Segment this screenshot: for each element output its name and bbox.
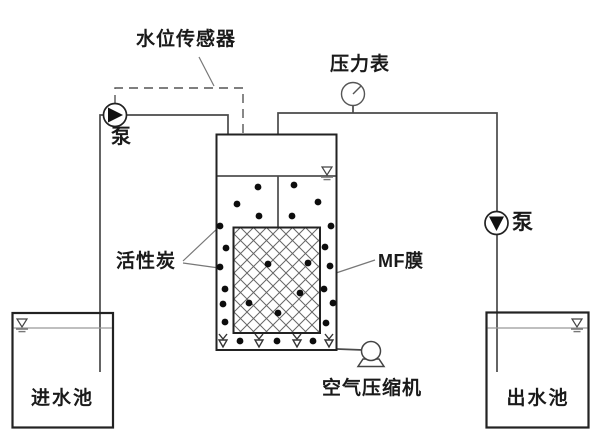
carbon-dot [222, 286, 229, 293]
carbon-dot [321, 286, 328, 293]
carbon-dot [323, 320, 330, 327]
leader-activated-carbon-1 [183, 227, 219, 261]
leader-water-level-sensor [199, 57, 214, 86]
pump-right-icon [485, 212, 508, 235]
carbon-dot [330, 300, 337, 307]
carbon-dot [234, 201, 241, 208]
carbon-dot [237, 338, 244, 345]
schematic-drawing [0, 0, 600, 443]
inlet-tank [13, 313, 114, 428]
carbon-dot [305, 260, 312, 267]
carbon-dot [256, 213, 263, 220]
leader-activated-carbon-2 [183, 263, 219, 268]
carbon-dot [255, 184, 262, 191]
carbon-dot [220, 301, 227, 308]
air-compressor-icon [358, 342, 384, 367]
carbon-dot [265, 261, 272, 268]
carbon-dot [274, 338, 281, 345]
carbon-dot [289, 213, 296, 220]
carbon-dot [297, 290, 304, 297]
outlet-tank-label: 出水池 [487, 389, 589, 408]
carbon-dot [315, 199, 322, 206]
carbon-dot [291, 182, 298, 189]
carbon-dot [328, 223, 335, 230]
pump-left-icon [104, 104, 127, 127]
schematic-canvas: 水位传感器 压力表 泵 泵 活性炭 MF膜 空气压缩机 进水池 出水池 [0, 0, 600, 443]
carbon-dot [327, 263, 334, 270]
carbon-dot [222, 319, 229, 326]
water-level-sensor-label: 水位传感器 [136, 30, 236, 49]
mf-membrane-label: MF膜 [378, 252, 424, 270]
pressure-gauge-icon [342, 83, 365, 106]
carbon-dot [246, 300, 253, 307]
air-compressor-label: 空气压缩机 [322, 379, 422, 398]
pressure-gauge-label: 压力表 [330, 55, 390, 74]
inlet-water-surface-icon [16, 319, 28, 332]
pipe-inlet [100, 115, 228, 372]
carbon-dot [322, 244, 329, 251]
pipe-air [337, 349, 363, 350]
mf-membrane-box [234, 228, 321, 334]
outlet-water-surface-icon [571, 319, 583, 332]
carbon-dot [275, 310, 282, 317]
pump-left-label: 泵 [111, 127, 132, 147]
carbon-dot [223, 245, 230, 252]
carbon-dot [217, 264, 224, 271]
pump-right-label: 泵 [512, 212, 534, 233]
carbon-dot [310, 338, 317, 345]
carbon-dot [217, 223, 224, 230]
activated-carbon-label: 活性炭 [116, 252, 176, 271]
inlet-tank-label: 进水池 [12, 389, 113, 408]
